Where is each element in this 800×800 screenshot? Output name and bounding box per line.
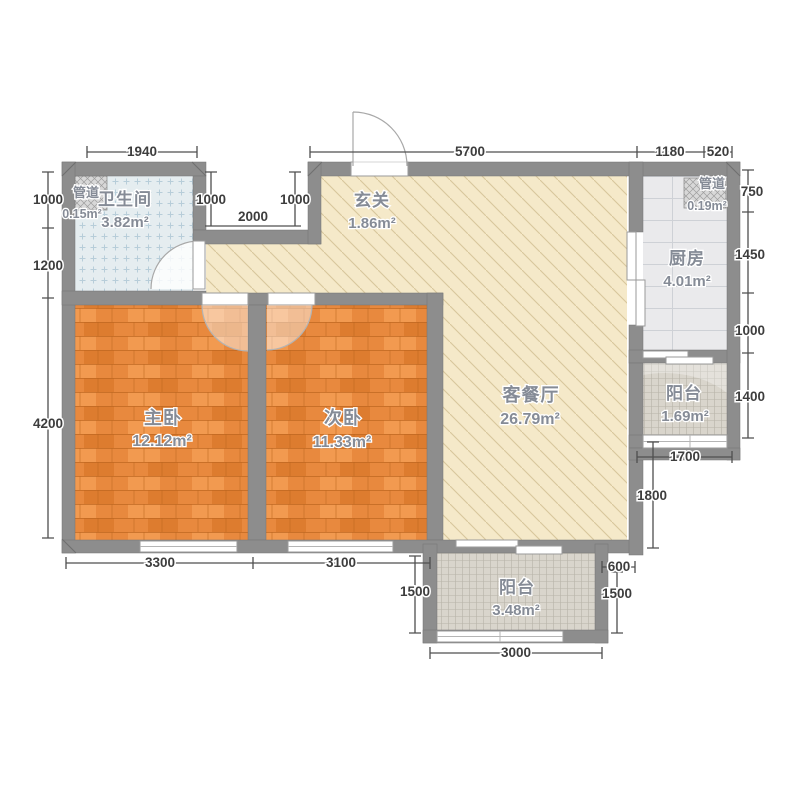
room-area-east-balcony: 1.69m² (661, 408, 709, 425)
room-area-bathroom: 3.82m² (101, 214, 149, 231)
room-label-duct-right: 管道 (699, 176, 725, 191)
dim-right-1450: 1450 (735, 247, 765, 262)
room-label-second-bedroom: 次卧 (324, 407, 362, 428)
dim-east-1700: 1700 (670, 449, 700, 464)
room-label-east-balcony: 阳台 (666, 383, 702, 403)
kitchen-window-panel-2 (666, 357, 713, 364)
kitchen-slider-panel-1 (627, 232, 636, 280)
living-slider-panel-2 (516, 546, 562, 554)
wall-notch-bottom (193, 230, 321, 244)
wall-between-bedrooms (248, 305, 266, 540)
room-area-second-bedroom: 11.33m² (313, 434, 372, 451)
dim-notch-1000-right: 1000 (280, 192, 310, 207)
dim-left-1200: 1200 (33, 258, 63, 273)
dim-sbalcony-1500-left: 1500 (400, 584, 430, 599)
room-area-master-bedroom: 12.12m² (132, 433, 192, 450)
floor-plan: 1940 5700 1180 520 1000 1200 4200 750 14… (0, 0, 800, 800)
dim-line-bottom (66, 557, 430, 569)
room-label-entry: 玄关 (354, 190, 390, 210)
dim-bottom-3100: 3100 (326, 555, 356, 570)
room-label-bathroom: 卫生间 (98, 189, 152, 209)
wall-bath-bottom (62, 291, 206, 305)
dim-left-1000: 1000 (33, 192, 63, 207)
dim-east-600: 600 (608, 559, 631, 574)
dim-top-1940: 1940 (127, 144, 157, 159)
wall-hall-a (248, 293, 268, 305)
wall-kitchen-left-a (629, 162, 643, 232)
dim-left-4200: 4200 (33, 416, 63, 431)
room-area-entry: 1.86m² (348, 215, 396, 232)
dim-bottom-3300: 3300 (145, 555, 175, 570)
living-slider-panel-1 (456, 540, 518, 547)
kitchen-slider-panel-2 (636, 280, 645, 326)
wall-bath-top (62, 162, 206, 176)
dim-top-520: 520 (707, 144, 730, 159)
dim-sbalcony-3000: 3000 (501, 645, 531, 660)
bathroom-door-leaf (193, 241, 205, 289)
entry-door-swing-fill (353, 112, 407, 166)
room-label-kitchen: 厨房 (669, 248, 705, 268)
dim-notch-2000: 2000 (238, 209, 268, 224)
room-label-duct-left: 管道 (73, 185, 99, 200)
room-area-duct-left: 0.15m² (62, 207, 102, 221)
room-label-living-dining: 客餐厅 (503, 384, 560, 405)
dim-notch-1000-left: 1000 (196, 192, 226, 207)
dim-top-1180: 1180 (655, 144, 684, 159)
wall-right (727, 162, 740, 460)
dim-sbalcony-1500-right: 1500 (602, 586, 632, 601)
room-label-south-balcony: 阳台 (499, 577, 535, 597)
floor-plan-page: 1940 5700 1180 520 1000 1200 4200 750 14… (0, 0, 800, 800)
dim-right-750: 750 (741, 184, 764, 199)
room-area-duct-right: 0.19m² (687, 199, 727, 213)
master-door-sill (202, 293, 248, 305)
room-area-living-dining: 26.79m² (500, 411, 560, 428)
wall-ebalcony-corner (629, 435, 643, 448)
room-label-master-bedroom: 主卧 (144, 407, 182, 428)
dim-east-1800: 1800 (637, 488, 667, 503)
room-area-kitchen: 4.01m² (663, 273, 711, 290)
second-door-sill (268, 293, 315, 305)
wall-bedroom2-right (427, 293, 443, 540)
wall-hall-b (315, 293, 443, 305)
dim-right-1400: 1400 (735, 389, 765, 404)
room-area-south-balcony: 3.48m² (492, 602, 540, 619)
dim-line-sbalcony-right (611, 572, 623, 633)
dim-top-5700: 5700 (455, 144, 485, 159)
dim-line-left (42, 172, 54, 538)
dim-right-1000: 1000 (735, 323, 765, 338)
